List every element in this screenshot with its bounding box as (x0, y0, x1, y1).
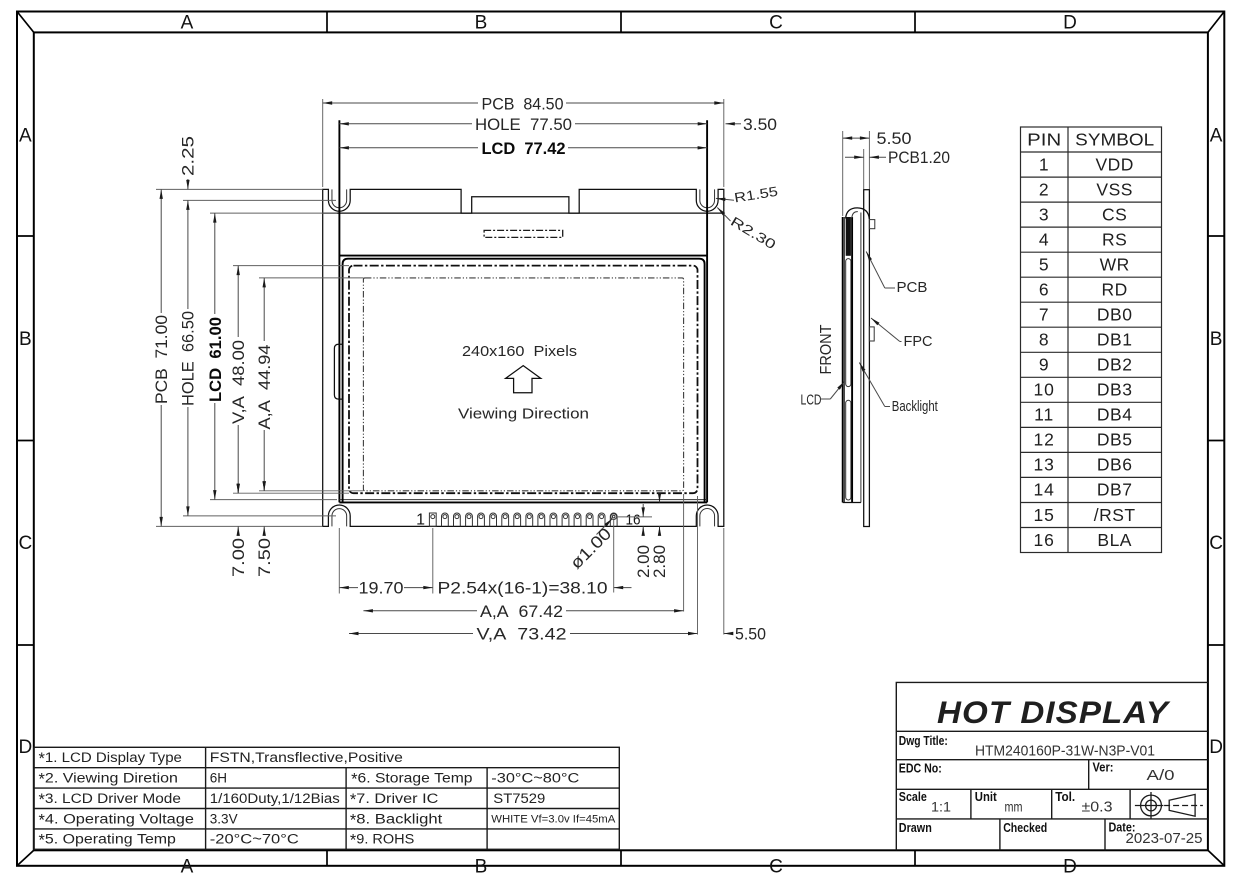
svg-text:PCB 84.50: PCB 84.50 (482, 94, 564, 113)
svg-text:D: D (1209, 737, 1223, 758)
svg-text:SYMBOL: SYMBOL (1075, 129, 1154, 149)
svg-text:DB3: DB3 (1097, 380, 1133, 400)
svg-text:HOLE 66.50: HOLE 66.50 (179, 311, 198, 406)
svg-text:8: 8 (1039, 330, 1050, 350)
svg-text:HTM240160P-31W-N3P-V01: HTM240160P-31W-N3P-V01 (975, 742, 1155, 759)
svg-text:DB1: DB1 (1097, 330, 1133, 350)
svg-text:V,A 73.42: V,A 73.42 (477, 625, 567, 644)
svg-text:5.50: 5.50 (877, 129, 912, 148)
svg-text:240x160 Pixels: 240x160 Pixels (462, 343, 577, 360)
svg-text:-20°C~70°C: -20°C~70°C (210, 832, 299, 847)
svg-text:DB0: DB0 (1097, 305, 1133, 325)
svg-text:1: 1 (416, 512, 425, 529)
svg-text:5.50: 5.50 (735, 625, 766, 644)
svg-text:D: D (19, 737, 33, 758)
svg-text:C: C (769, 857, 783, 878)
svg-text:VDD: VDD (1095, 154, 1133, 174)
svg-text:16: 16 (1033, 530, 1054, 550)
svg-text:7.00: 7.00 (229, 538, 248, 577)
svg-text:WR: WR (1100, 254, 1130, 274)
svg-text:7.50: 7.50 (255, 538, 274, 577)
svg-text:V,A 48.00: V,A 48.00 (229, 340, 248, 424)
svg-text:2.80: 2.80 (650, 545, 669, 578)
svg-text:3.3V: 3.3V (210, 811, 238, 826)
svg-text:FRONT: FRONT (818, 324, 835, 375)
svg-text:A: A (19, 126, 32, 147)
svg-text:7: 7 (1039, 305, 1050, 325)
svg-text:LCD: LCD (801, 393, 822, 409)
svg-text:10: 10 (1033, 380, 1054, 400)
svg-text:1/160Duty,1/12Bias: 1/160Duty,1/12Bias (210, 791, 340, 806)
svg-text:Tol.: Tol. (1055, 790, 1075, 804)
svg-text:A/0: A/0 (1147, 768, 1175, 784)
svg-text:DB7: DB7 (1097, 480, 1133, 500)
svg-text:6H: 6H (210, 771, 227, 786)
svg-text:RS: RS (1102, 229, 1127, 249)
svg-text:C: C (1209, 533, 1223, 554)
svg-text:mm: mm (1005, 799, 1023, 815)
svg-text:15: 15 (1033, 505, 1054, 525)
svg-text:LCD 61.00: LCD 61.00 (206, 317, 225, 402)
svg-text:WHITE Vf=3.0v If=45mA: WHITE Vf=3.0v If=45mA (491, 813, 616, 825)
svg-text:5: 5 (1039, 254, 1050, 274)
svg-text:A: A (181, 857, 194, 878)
svg-text:-30°C~80°C: -30°C~80°C (491, 771, 579, 786)
svg-text:A: A (181, 13, 194, 34)
svg-text:Ver:: Ver: (1093, 761, 1114, 775)
svg-text:9: 9 (1039, 355, 1050, 375)
svg-text:3.50: 3.50 (743, 115, 777, 134)
svg-text:12: 12 (1033, 430, 1054, 450)
svg-text:PCB: PCB (897, 280, 928, 296)
svg-text:EDC No:: EDC No: (899, 762, 942, 776)
svg-text:P2.54x(16-1)=38.10: P2.54x(16-1)=38.10 (438, 579, 608, 598)
svg-text:CS: CS (1102, 204, 1127, 224)
svg-text:6: 6 (1039, 280, 1050, 300)
svg-text:PIN: PIN (1027, 129, 1061, 149)
svg-text:C: C (769, 13, 783, 34)
svg-text:±0.3: ±0.3 (1082, 800, 1113, 816)
svg-text:2023-07-25: 2023-07-25 (1126, 830, 1203, 847)
svg-text:Checked: Checked (1003, 821, 1047, 835)
svg-text:VSS: VSS (1096, 179, 1133, 199)
svg-text:Dwg Title:: Dwg Title: (899, 734, 948, 748)
svg-text:D: D (1063, 13, 1077, 34)
svg-text:PCB 71.00: PCB 71.00 (152, 315, 171, 404)
svg-text:DB5: DB5 (1097, 430, 1133, 450)
svg-text:B: B (475, 13, 488, 34)
svg-text:Backlight: Backlight (892, 399, 938, 415)
svg-text:A,A 67.42: A,A 67.42 (480, 602, 563, 621)
svg-text:4: 4 (1039, 229, 1050, 249)
svg-text:3: 3 (1039, 204, 1050, 224)
svg-text:PCB1.20: PCB1.20 (888, 148, 950, 167)
svg-text:19.70: 19.70 (359, 579, 404, 598)
svg-text:BLA: BLA (1097, 530, 1132, 550)
svg-text:RD: RD (1102, 280, 1128, 300)
svg-text:14: 14 (1033, 480, 1054, 500)
svg-text:FPC: FPC (904, 334, 933, 350)
svg-text:B: B (475, 857, 488, 878)
svg-text:HOT DISPLAY: HOT DISPLAY (937, 694, 1171, 730)
svg-text:2: 2 (1039, 179, 1050, 199)
svg-text:B: B (19, 329, 32, 350)
svg-text:Scale: Scale (899, 790, 927, 804)
svg-text:B: B (1210, 329, 1223, 350)
svg-text:DB2: DB2 (1097, 355, 1133, 375)
svg-text:1:1: 1:1 (931, 799, 951, 815)
svg-text:C: C (19, 533, 33, 554)
svg-text:16: 16 (626, 512, 641, 529)
svg-text:A: A (1210, 126, 1223, 147)
svg-text:DB6: DB6 (1097, 455, 1133, 475)
svg-text:A,A 44.94: A,A 44.94 (255, 345, 274, 430)
svg-text:13: 13 (1033, 455, 1054, 475)
svg-text:LCD 77.42: LCD 77.42 (482, 139, 566, 158)
svg-text:Unit: Unit (975, 790, 998, 804)
svg-text:Viewing Direction: Viewing Direction (458, 406, 589, 423)
svg-text:Drawn: Drawn (899, 821, 932, 835)
svg-text:11: 11 (1034, 405, 1054, 425)
svg-text:/RST: /RST (1094, 505, 1136, 525)
svg-text:DB4: DB4 (1097, 405, 1133, 425)
svg-text:2.25: 2.25 (178, 136, 197, 176)
svg-text:D: D (1063, 857, 1077, 878)
svg-text:ST7529: ST7529 (493, 790, 545, 806)
svg-text:HOLE 77.50: HOLE 77.50 (475, 115, 572, 134)
svg-text:1: 1 (1039, 154, 1050, 174)
svg-text:FSTN,Transflective,Positive: FSTN,Transflective,Positive (210, 750, 403, 765)
